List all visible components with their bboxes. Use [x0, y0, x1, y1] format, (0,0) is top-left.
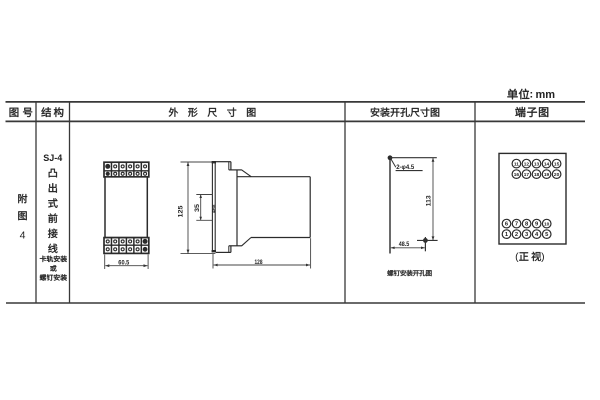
svg-text:10: 10	[544, 221, 550, 227]
svg-text:4: 4	[20, 230, 26, 242]
svg-text:11: 11	[514, 161, 519, 167]
svg-text::: :	[529, 89, 533, 101]
svg-text:125: 125	[178, 205, 185, 217]
svg-text:19: 19	[544, 172, 550, 178]
svg-text:18: 18	[534, 172, 540, 178]
svg-text:(: (	[515, 251, 519, 263]
svg-text:4H8: 4H8	[211, 204, 216, 213]
svg-text:2-φ4.5: 2-φ4.5	[396, 164, 415, 171]
svg-text:16: 16	[514, 172, 520, 178]
svg-text:113: 113	[426, 195, 433, 206]
svg-text:35: 35	[194, 203, 201, 212]
svg-text:SJ-4: SJ-4	[43, 153, 62, 163]
svg-text:7: 7	[515, 222, 518, 228]
svg-text:2: 2	[515, 232, 518, 238]
svg-text:128: 128	[255, 259, 263, 266]
svg-text:15: 15	[554, 161, 560, 167]
svg-text:14: 14	[544, 161, 550, 167]
svg-text:12: 12	[524, 161, 530, 167]
svg-text:60.5: 60.5	[118, 259, 129, 266]
svg-text:48.5: 48.5	[399, 241, 410, 248]
svg-text:17: 17	[524, 172, 530, 178]
svg-text:20: 20	[554, 172, 560, 178]
svg-text:mm: mm	[536, 89, 556, 101]
svg-text:): )	[541, 251, 545, 263]
svg-text:13: 13	[534, 161, 540, 167]
